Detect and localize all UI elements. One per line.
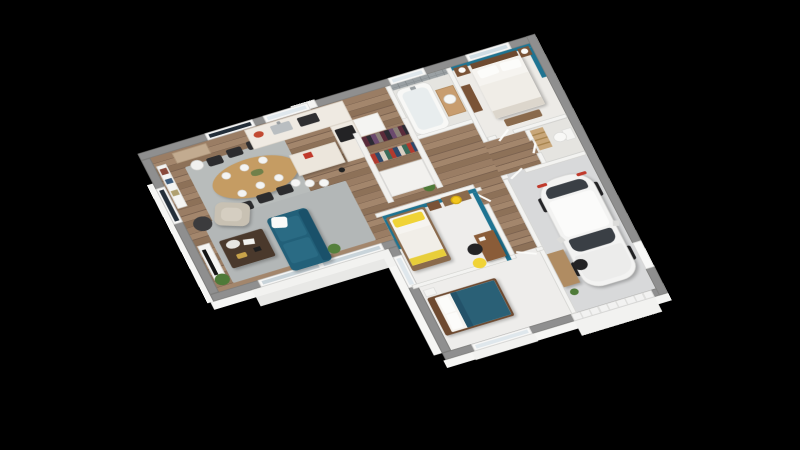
sofa-pillow-white xyxy=(271,216,288,228)
floor-plan-render xyxy=(0,0,800,450)
car-mirror-right xyxy=(613,220,620,226)
floor-plan xyxy=(150,43,656,403)
armchair-cushion xyxy=(221,207,243,221)
